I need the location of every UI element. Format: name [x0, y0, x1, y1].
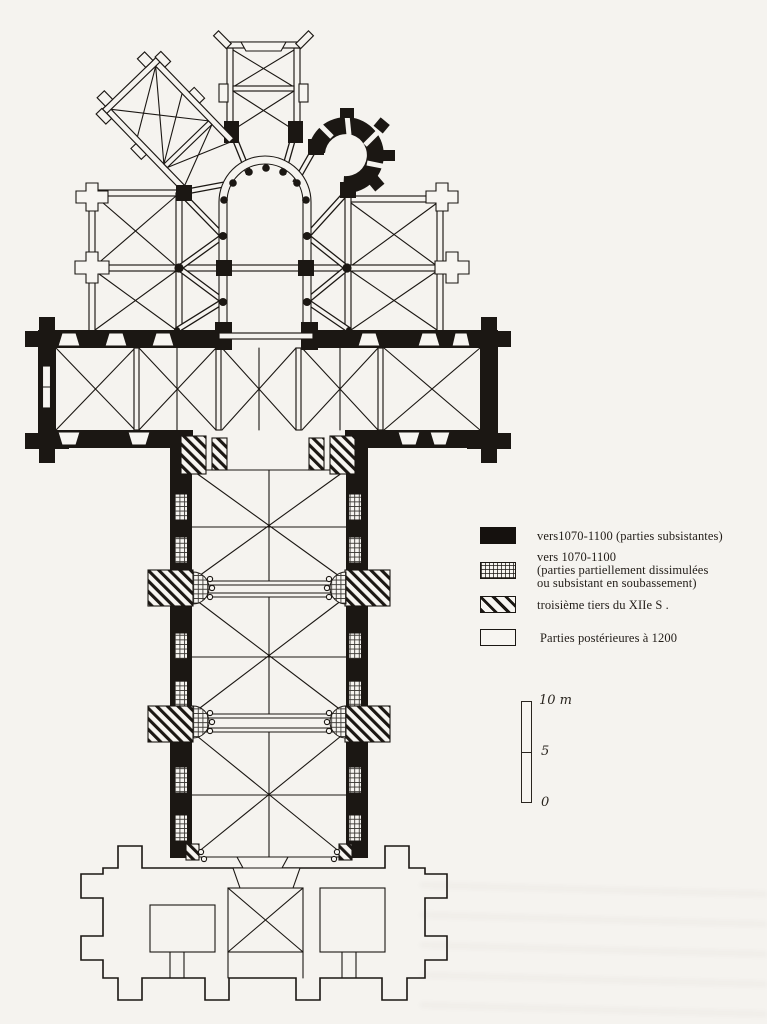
horseshoe-chapel — [308, 108, 395, 198]
west-block — [81, 846, 447, 1000]
legend-swatch-stippled — [480, 562, 516, 579]
legend-label: vers1070-1100 (parties subsistantes) — [537, 530, 723, 543]
scale-bar-rule — [521, 701, 532, 803]
scale-label-10m: 10 m — [539, 693, 572, 708]
legend-swatch-diagonal-hatch — [480, 596, 516, 613]
northeast-tilted-chapel — [88, 44, 239, 196]
page: vers1070-1100 (parties subsistantes) ver… — [0, 0, 767, 1024]
legend-swatch-solid-black — [480, 527, 516, 544]
legend-label: Parties postérieures à 1200 — [540, 632, 677, 645]
scale-label-0: 0 — [541, 795, 549, 810]
transept-walls — [25, 317, 511, 463]
chapel-junction-pier — [176, 185, 192, 201]
legend-swatch-white-outline — [480, 629, 516, 646]
church-floor-plan — [0, 0, 767, 1024]
legend-label: ou subsistant en soubassement) — [537, 577, 697, 590]
choir-aisles — [89, 190, 443, 332]
page-bleed-through — [420, 880, 767, 1024]
nave-vaults — [192, 470, 346, 857]
scale-label-5: 5 — [541, 744, 549, 759]
legend-label: troisième tiers du XIIe S . — [537, 599, 669, 612]
axial-chapel — [214, 31, 314, 143]
scale-bar-tick — [522, 752, 531, 753]
transept-vaults — [56, 348, 480, 430]
